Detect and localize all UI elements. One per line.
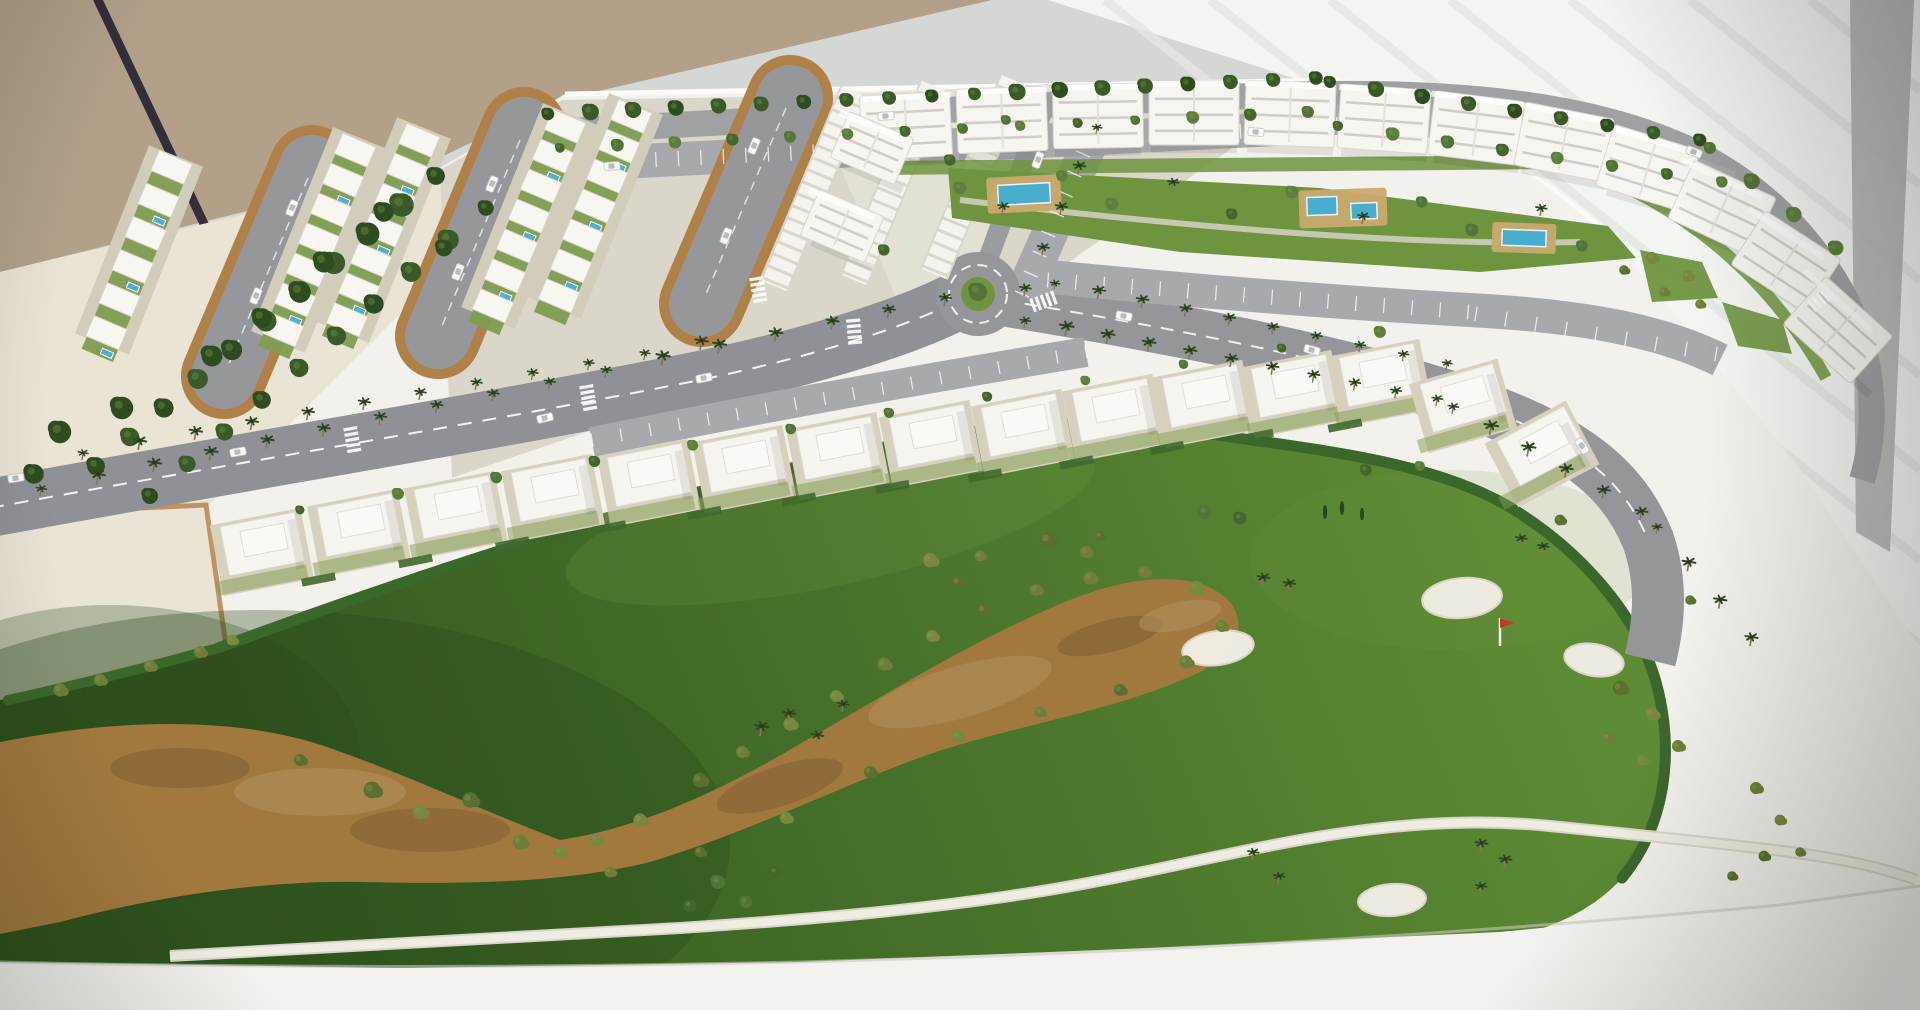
model-scene (0, 0, 1920, 1010)
scale-model-photo: Overhead photograph of an architectural … (0, 0, 1920, 1010)
photo-vignette (0, 0, 1920, 1010)
vignette (0, 0, 1920, 1010)
